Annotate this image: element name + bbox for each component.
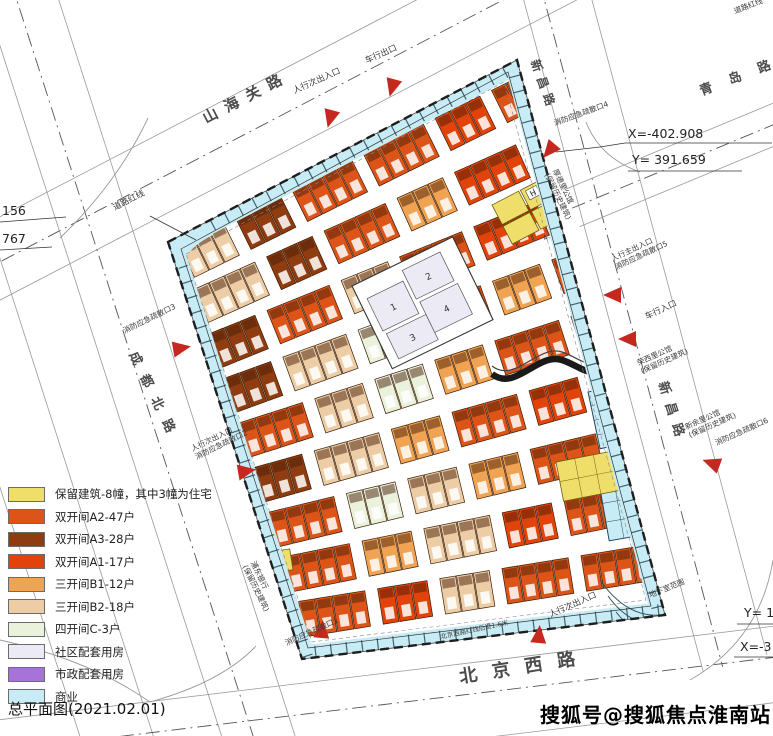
legend-swatch xyxy=(8,577,45,592)
site-plan-page: H 4.0 1 2 3 4 xyxy=(0,0,773,736)
watermark: 搜狐号@搜狐焦点淮南站 xyxy=(540,699,771,728)
entrance-arrow xyxy=(618,331,636,347)
entrance-arrow xyxy=(172,339,193,358)
entrance-arrow xyxy=(700,452,722,473)
legend-label: 保留建筑-8幢，其中3幢为住宅 xyxy=(55,486,212,502)
legend-item: 双开间A1-17户 xyxy=(8,554,212,570)
legend-item: 双开间A3-28户 xyxy=(8,531,212,547)
legend-label: 三开间B2-18户 xyxy=(55,599,135,615)
coord-left-1: 156 xyxy=(2,204,26,218)
legend-label: 三开间B1-12户 xyxy=(55,576,135,592)
legend-label: 社区配套用房 xyxy=(55,644,124,660)
legend-item: 四开间C-3户 xyxy=(8,621,212,637)
legend-label: 双开间A1-17户 xyxy=(55,554,135,570)
legend-label: 双开间A3-28户 xyxy=(55,531,135,547)
entrance-arrow xyxy=(320,108,340,130)
legend-item: 三开间B2-18户 xyxy=(8,599,212,615)
legend-item: 保留建筑-8幢，其中3幢为住宅 xyxy=(8,486,212,502)
legend-swatch xyxy=(8,487,45,502)
legend-label: 双开间A2-47户 xyxy=(55,509,135,525)
entrance-arrow xyxy=(603,287,621,303)
legend: 保留建筑-8幢，其中3幢为住宅双开间A2-47户双开间A3-28户双开间A1-1… xyxy=(8,486,212,711)
legend-item: 社区配套用房 xyxy=(8,644,212,660)
legend-item: 三开间B1-12户 xyxy=(8,576,212,592)
legend-swatch xyxy=(8,554,45,569)
coord-top-right-y: Y= 391.659 xyxy=(632,153,706,167)
page-title: 总平面图(2021.02.01) xyxy=(8,698,166,719)
coord-bottom-right-y: Y= 1 xyxy=(744,606,773,620)
legend-swatch xyxy=(8,509,45,524)
legend-item: 双开间A2-47户 xyxy=(8,509,212,525)
legend-swatch xyxy=(8,667,45,682)
legend-swatch xyxy=(8,599,45,614)
coord-bottom-right-x: X=-3 xyxy=(740,640,772,654)
municipal-small-block xyxy=(598,353,613,367)
legend-label: 四开间C-3户 xyxy=(55,621,121,637)
legend-swatch xyxy=(8,644,45,659)
legend-item: 市政配套用房 xyxy=(8,666,212,682)
legend-swatch xyxy=(8,532,45,547)
coord-left-2: 767 xyxy=(2,232,26,246)
legend-swatch xyxy=(8,622,45,637)
entrance-arrow xyxy=(382,77,402,99)
legend-label: 市政配套用房 xyxy=(55,666,124,682)
coord-top-right-x: X=-402.908 xyxy=(628,127,703,141)
